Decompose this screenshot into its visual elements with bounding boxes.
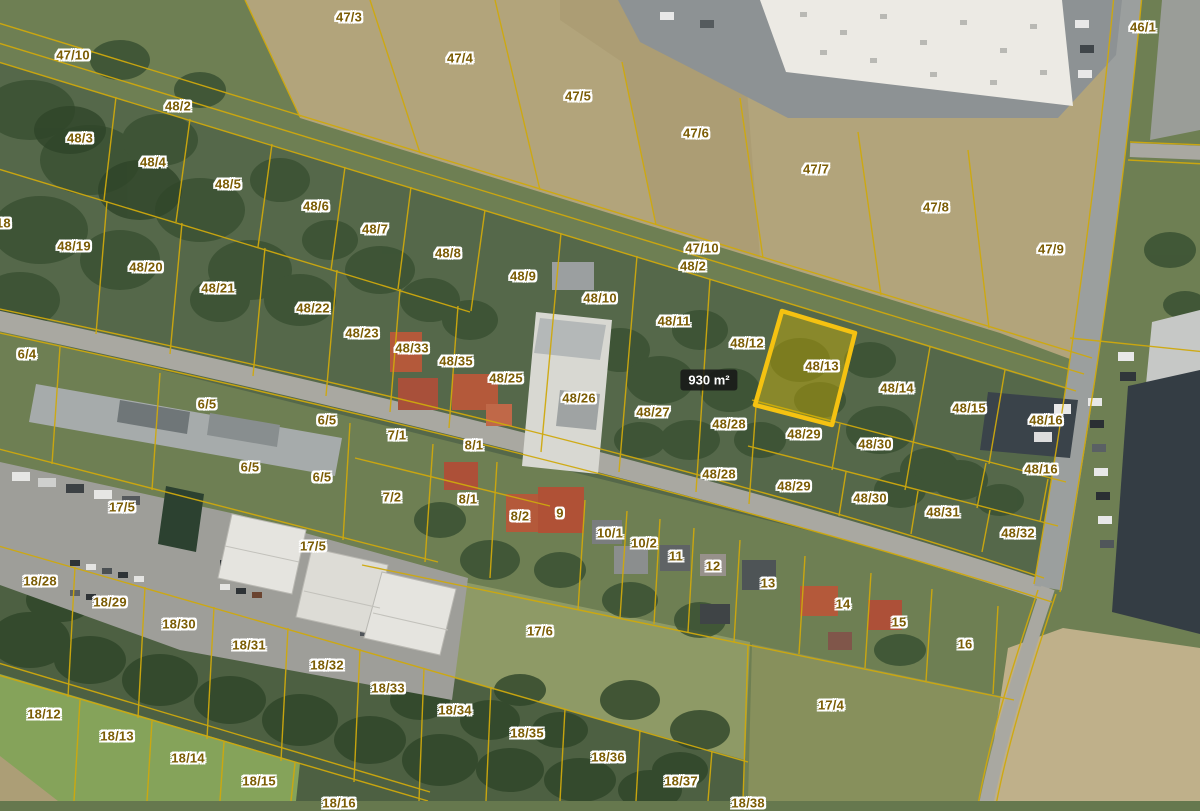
map-canvas[interactable]: 47/1048/247/347/447/547/647/747/847/946/… xyxy=(0,0,1200,801)
trailer-white-2 xyxy=(1034,432,1052,442)
area-badge: 930 m² xyxy=(680,370,737,391)
east-branch-road xyxy=(1130,150,1200,153)
building-48-26-upper xyxy=(534,318,606,360)
building-48-26-patch xyxy=(556,390,600,430)
aerial-basemap xyxy=(0,0,1200,801)
